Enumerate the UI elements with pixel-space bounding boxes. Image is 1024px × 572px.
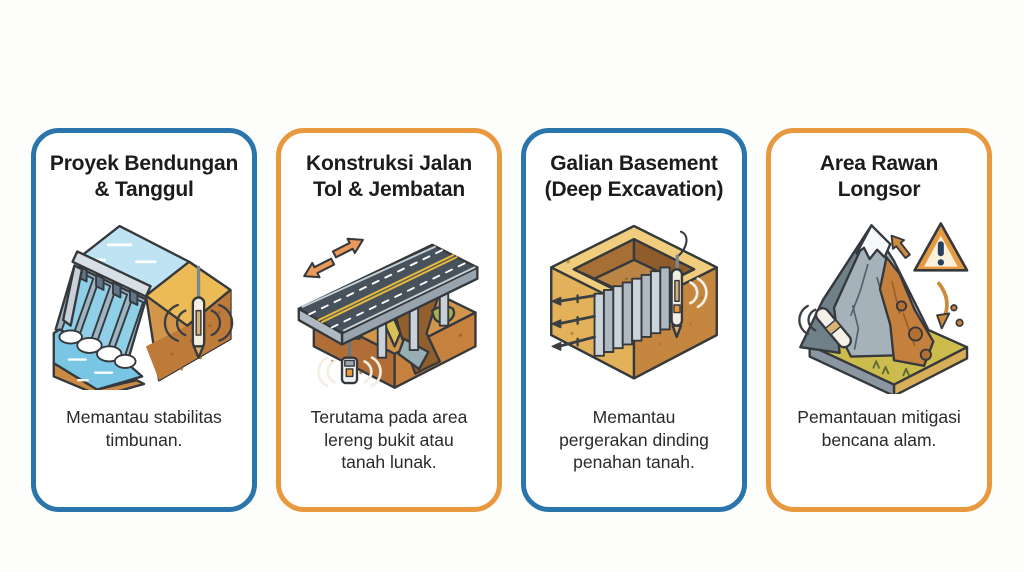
card-highway-bridge: Konstruksi Jalan Tol & Jembatan <box>276 128 502 512</box>
card-title: Galian Basement (Deep Excavation) <box>534 151 734 202</box>
card-description: Pemantauan mitigasi bencana alam. <box>779 406 979 451</box>
card-title: Proyek Bendungan & Tanggul <box>44 151 244 202</box>
dam-illustration-svg <box>50 220 238 390</box>
movement-arrows-icon <box>301 233 367 283</box>
card-landslide-area: Area Rawan Longsor <box>766 128 992 512</box>
landslide-illustration <box>785 212 973 398</box>
card-dam-embankment: Proyek Bendungan & Tanggul <box>31 128 257 512</box>
card-description: Terutama pada area lereng bukit atau tan… <box>289 406 489 473</box>
card-title: Area Rawan Longsor <box>779 151 979 202</box>
bridge-illustration-svg <box>295 220 483 390</box>
excavation-illustration-svg <box>540 220 728 390</box>
landslide-illustration-svg <box>785 216 973 394</box>
card-description: Memantau pergerakan dinding penahan tana… <box>534 406 734 473</box>
dam-illustration <box>50 212 238 398</box>
card-description: Memantau stabilitas timbunan. <box>44 406 244 451</box>
bridge-illustration <box>295 212 483 398</box>
info-cards-row: Proyek Bendungan & Tanggul <box>31 128 993 512</box>
excavation-illustration <box>540 212 728 398</box>
card-title: Konstruksi Jalan Tol & Jembatan <box>289 151 489 202</box>
card-deep-excavation: Galian Basement (Deep Excavation) <box>521 128 747 512</box>
warning-triangle-icon <box>915 224 967 271</box>
